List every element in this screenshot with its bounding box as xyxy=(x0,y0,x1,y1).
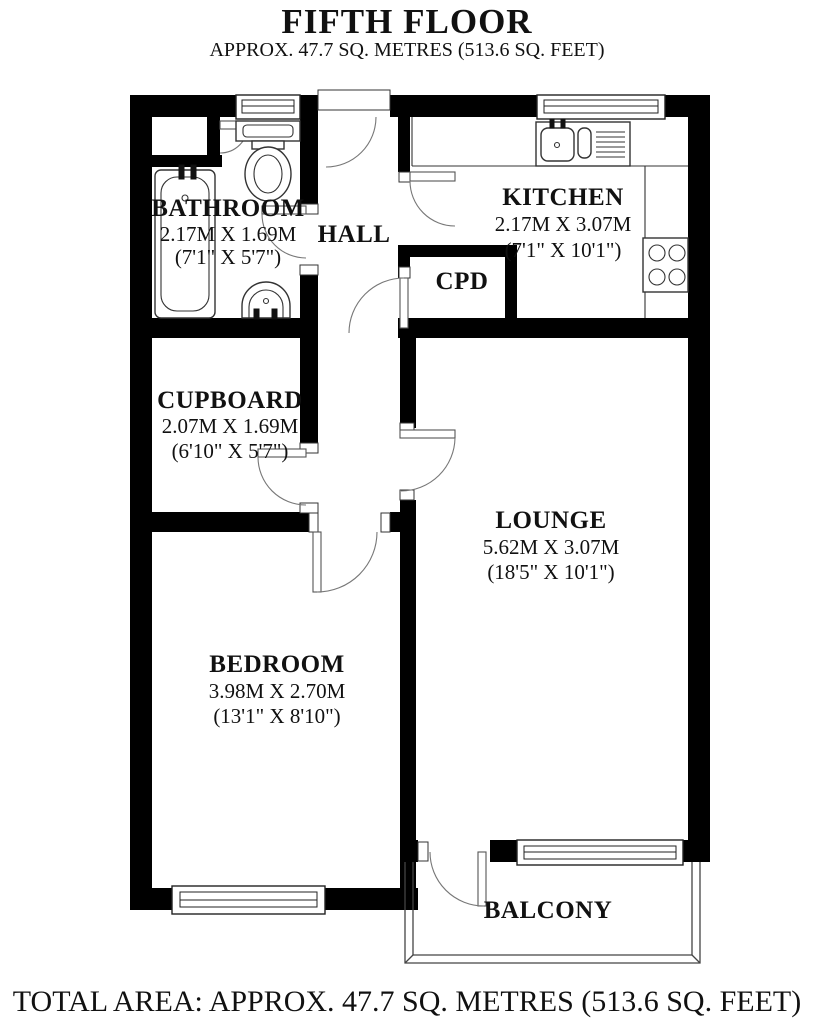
wall-top-d xyxy=(665,95,710,117)
floor-plan: FIFTH FLOOR APPROX. 47.7 SQ. METRES (513… xyxy=(0,0,814,1024)
room-label-balcony: BALCONY xyxy=(484,897,613,924)
kitchen-dims-imperial: (7'1" X 10'1") xyxy=(505,238,622,262)
wall-bathroom-bottom xyxy=(130,318,318,338)
kitchen-window xyxy=(537,95,665,119)
wall-bedroom-lounge xyxy=(400,500,416,910)
room-label-bedroom: BEDROOM 3.98M X 2.70M (13'1" X 8'10") xyxy=(209,651,346,728)
room-label-cupboard: CUPBOARD 2.07M X 1.69M (6'10" X 5'7") xyxy=(157,387,303,463)
page-subtitle: APPROX. 47.7 SQ. METRES (513.6 SQ. FEET) xyxy=(209,39,604,61)
bedroom-door-post xyxy=(381,513,390,532)
wall-hall-lounge-upper xyxy=(400,338,416,428)
wall-bedroom-top-a xyxy=(130,512,318,532)
room-label-hall: HALL xyxy=(318,221,391,248)
lounge-window xyxy=(517,840,683,865)
wall-hall-bathroom-upper xyxy=(300,117,318,205)
bedroom-window xyxy=(172,886,325,914)
bathroom-door-post xyxy=(300,265,318,275)
bedroom-door-post xyxy=(309,513,318,532)
kitchen-door-post xyxy=(399,172,410,182)
cupboard-dims-metric: 2.07M X 1.69M xyxy=(162,414,299,438)
wall-right xyxy=(688,117,710,862)
room-label-lounge: LOUNGE 5.62M X 3.07M (18'5" X 10'1") xyxy=(483,507,620,584)
room-label-kitchen: KITCHEN 2.17M X 3.07M (7'1" X 10'1") xyxy=(495,184,632,262)
wall-wc-bar xyxy=(152,155,222,167)
wall-bedroom-bottom-a xyxy=(130,888,172,910)
kitchen-dims-metric: 2.17M X 3.07M xyxy=(495,212,632,236)
cupboard-dims-imperial: (6'10" X 5'7") xyxy=(172,439,289,463)
wall-top-b xyxy=(300,95,318,117)
bedroom-dims-imperial: (13'1" X 8'10") xyxy=(213,704,340,728)
cpd-name: CPD xyxy=(436,268,489,295)
balcony-door-post xyxy=(418,842,428,861)
kitchen-sink xyxy=(536,119,630,166)
balcony-name: BALCONY xyxy=(484,897,613,924)
wall-bedroom-top-b xyxy=(390,512,416,532)
room-label-cpd: CPD xyxy=(436,268,489,295)
bathroom-dims-metric: 2.17M X 1.69M xyxy=(160,222,297,246)
hall-name: HALL xyxy=(318,221,391,248)
lounge-dims-metric: 5.62M X 3.07M xyxy=(483,535,620,559)
bedroom-dims-metric: 3.98M X 2.70M xyxy=(209,679,346,703)
wall-cpd-top xyxy=(398,245,517,257)
total-area-text: TOTAL AREA: APPROX. 47.7 SQ. METRES (513… xyxy=(13,985,802,1018)
cpd-door-post xyxy=(399,267,410,278)
wall-hall-bathroom-lower xyxy=(300,275,318,443)
hob xyxy=(643,238,688,292)
bedroom-name: BEDROOM xyxy=(209,651,344,678)
wall-left xyxy=(130,95,152,910)
kitchen-name: KITCHEN xyxy=(502,184,624,211)
bathroom-dims-imperial: (7'1" X 5'7") xyxy=(175,245,281,269)
wall-top-c xyxy=(390,95,537,117)
page-title: FIFTH FLOOR xyxy=(281,2,532,41)
wall-kitchen-lounge-divider xyxy=(398,318,710,338)
cupboard-name: CUPBOARD xyxy=(157,387,303,414)
lounge-dims-imperial: (18'5" X 10'1") xyxy=(487,560,614,584)
wall-lounge-bottom-b xyxy=(490,840,517,862)
wall-kitchen-west xyxy=(398,117,410,172)
bathroom-window xyxy=(236,95,300,119)
entrance-threshold xyxy=(318,90,390,110)
bathroom-name: BATHROOM xyxy=(151,195,305,222)
lounge-name: LOUNGE xyxy=(495,507,606,534)
wall-lounge-bottom-c xyxy=(683,840,710,862)
